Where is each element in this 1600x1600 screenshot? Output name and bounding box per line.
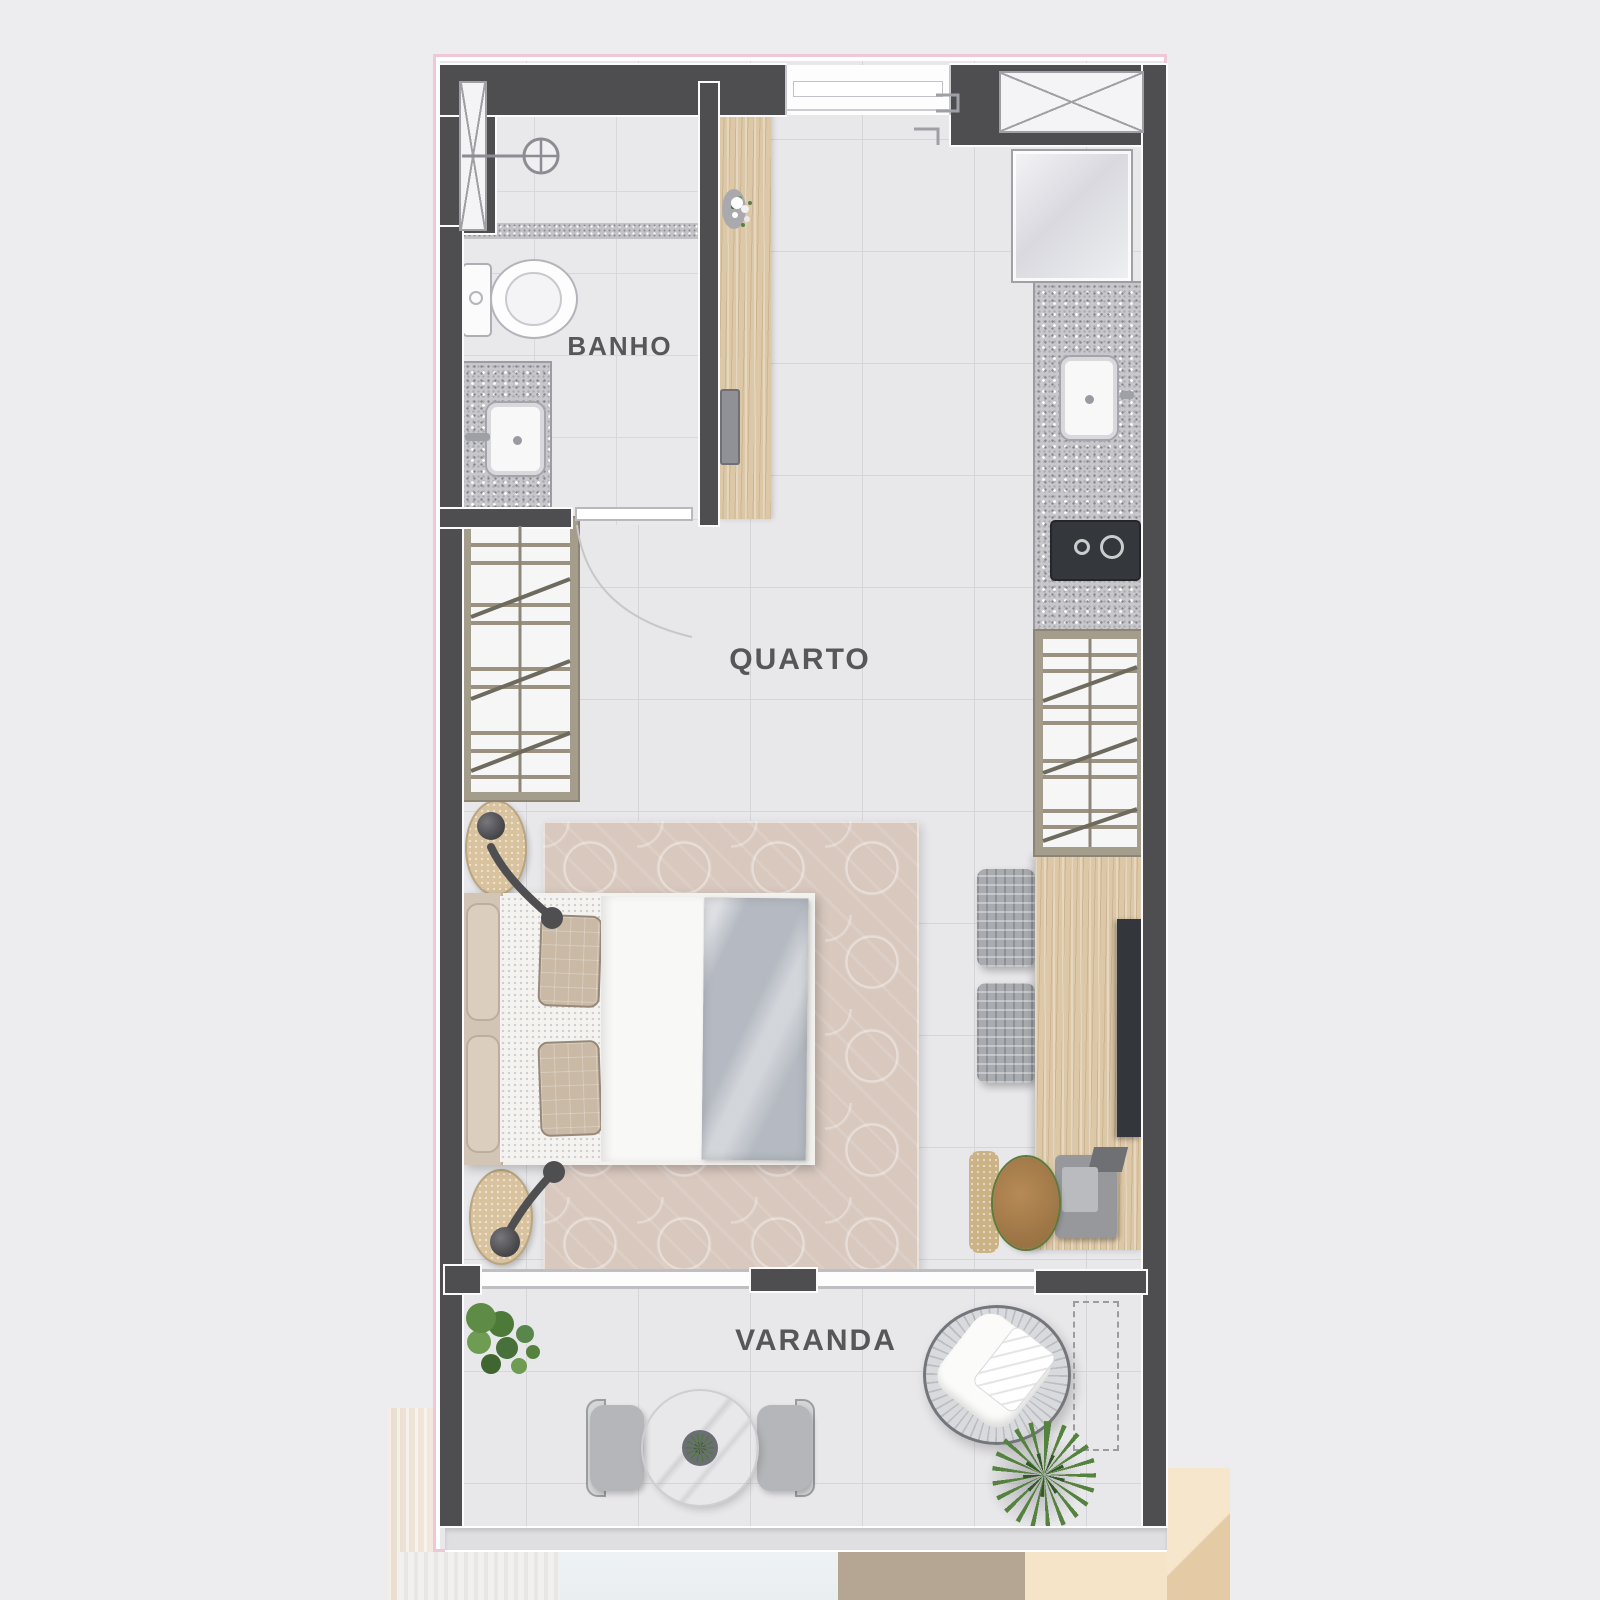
entry-threshold bbox=[787, 109, 949, 111]
wall-left bbox=[440, 227, 462, 1526]
bathroom-sink bbox=[485, 401, 546, 477]
shower-threshold bbox=[462, 223, 700, 239]
room-label-quarto: QUARTO bbox=[700, 643, 900, 677]
flowers bbox=[731, 197, 743, 209]
wall-right bbox=[1143, 65, 1166, 1526]
room-label-banho: BANHO bbox=[555, 331, 685, 362]
chair-seat bbox=[757, 1405, 811, 1491]
wardrobe-right bbox=[1035, 631, 1145, 855]
wall-varanda-stub-left bbox=[445, 1266, 480, 1293]
kitchen-counter bbox=[1033, 281, 1144, 633]
floor-plan: BANHO QUARTO VARANDA bbox=[433, 54, 1167, 1552]
wall-top bbox=[440, 65, 785, 115]
background-photo-strip-3 bbox=[838, 1552, 1025, 1600]
burner-large bbox=[1100, 535, 1124, 559]
pouf-bottom bbox=[977, 983, 1035, 1083]
bed-blanket bbox=[702, 897, 809, 1160]
duct-shaft-left bbox=[459, 81, 487, 231]
fern-plant bbox=[992, 1421, 1096, 1529]
wall-bathroom-right bbox=[700, 83, 718, 525]
duct-shaft-top-right bbox=[999, 71, 1144, 133]
bathroom-door-leaf bbox=[575, 507, 693, 521]
sink-drain bbox=[513, 436, 522, 445]
bolster-pillow-bottom bbox=[466, 1035, 500, 1153]
accent-pillow-bottom bbox=[537, 1040, 602, 1137]
background-photo-wedge-right bbox=[1167, 1468, 1230, 1600]
bolster-pillow-top bbox=[466, 903, 500, 1021]
floor-plan-image: BANHO QUARTO VARANDA bbox=[0, 0, 1600, 1600]
burner-small bbox=[1074, 539, 1090, 555]
potted-plant-varanda bbox=[466, 1303, 496, 1333]
tv bbox=[1117, 919, 1141, 1137]
wall-bathroom-bottom bbox=[440, 509, 571, 527]
toilet-bowl bbox=[490, 259, 578, 339]
kitchen-faucet bbox=[1120, 391, 1134, 399]
sliding-door-panel bbox=[751, 1269, 816, 1291]
pouf-top bbox=[977, 869, 1035, 967]
lamp-top bbox=[477, 812, 505, 840]
entry-door-slab bbox=[793, 81, 943, 97]
room-label-varanda: VARANDA bbox=[716, 1324, 916, 1358]
wall-varanda-right-segment bbox=[1036, 1271, 1146, 1293]
bistro-chair-right bbox=[753, 1399, 815, 1497]
toilet-tank bbox=[462, 263, 492, 337]
sliding-door-handle bbox=[720, 389, 740, 465]
dashed-reserved-area bbox=[1073, 1301, 1119, 1451]
accent-pillow-top bbox=[537, 914, 602, 1008]
wardrobe-left bbox=[463, 518, 578, 800]
bathroom-faucet bbox=[465, 433, 490, 441]
kitchen-sink bbox=[1059, 355, 1119, 441]
bed-sheet bbox=[601, 896, 703, 1162]
entry-door-opening bbox=[785, 65, 951, 115]
chair-seat bbox=[590, 1405, 644, 1491]
double-bed bbox=[463, 893, 815, 1165]
fridge bbox=[1011, 149, 1133, 283]
background-photo-strip-1 bbox=[398, 1552, 560, 1600]
sink-drain bbox=[1085, 395, 1094, 404]
cooktop bbox=[1052, 522, 1139, 579]
laptop bbox=[1055, 1155, 1117, 1238]
glass-railing bbox=[445, 1526, 1167, 1552]
bistro-table bbox=[643, 1391, 757, 1505]
vase bbox=[722, 189, 746, 229]
lamp-bottom bbox=[490, 1227, 520, 1257]
bistro-chair-left bbox=[586, 1399, 648, 1497]
table-centerpiece-plant bbox=[686, 1434, 714, 1462]
desk-chair-seat bbox=[993, 1157, 1059, 1249]
background-photo-strip-2 bbox=[560, 1552, 838, 1600]
